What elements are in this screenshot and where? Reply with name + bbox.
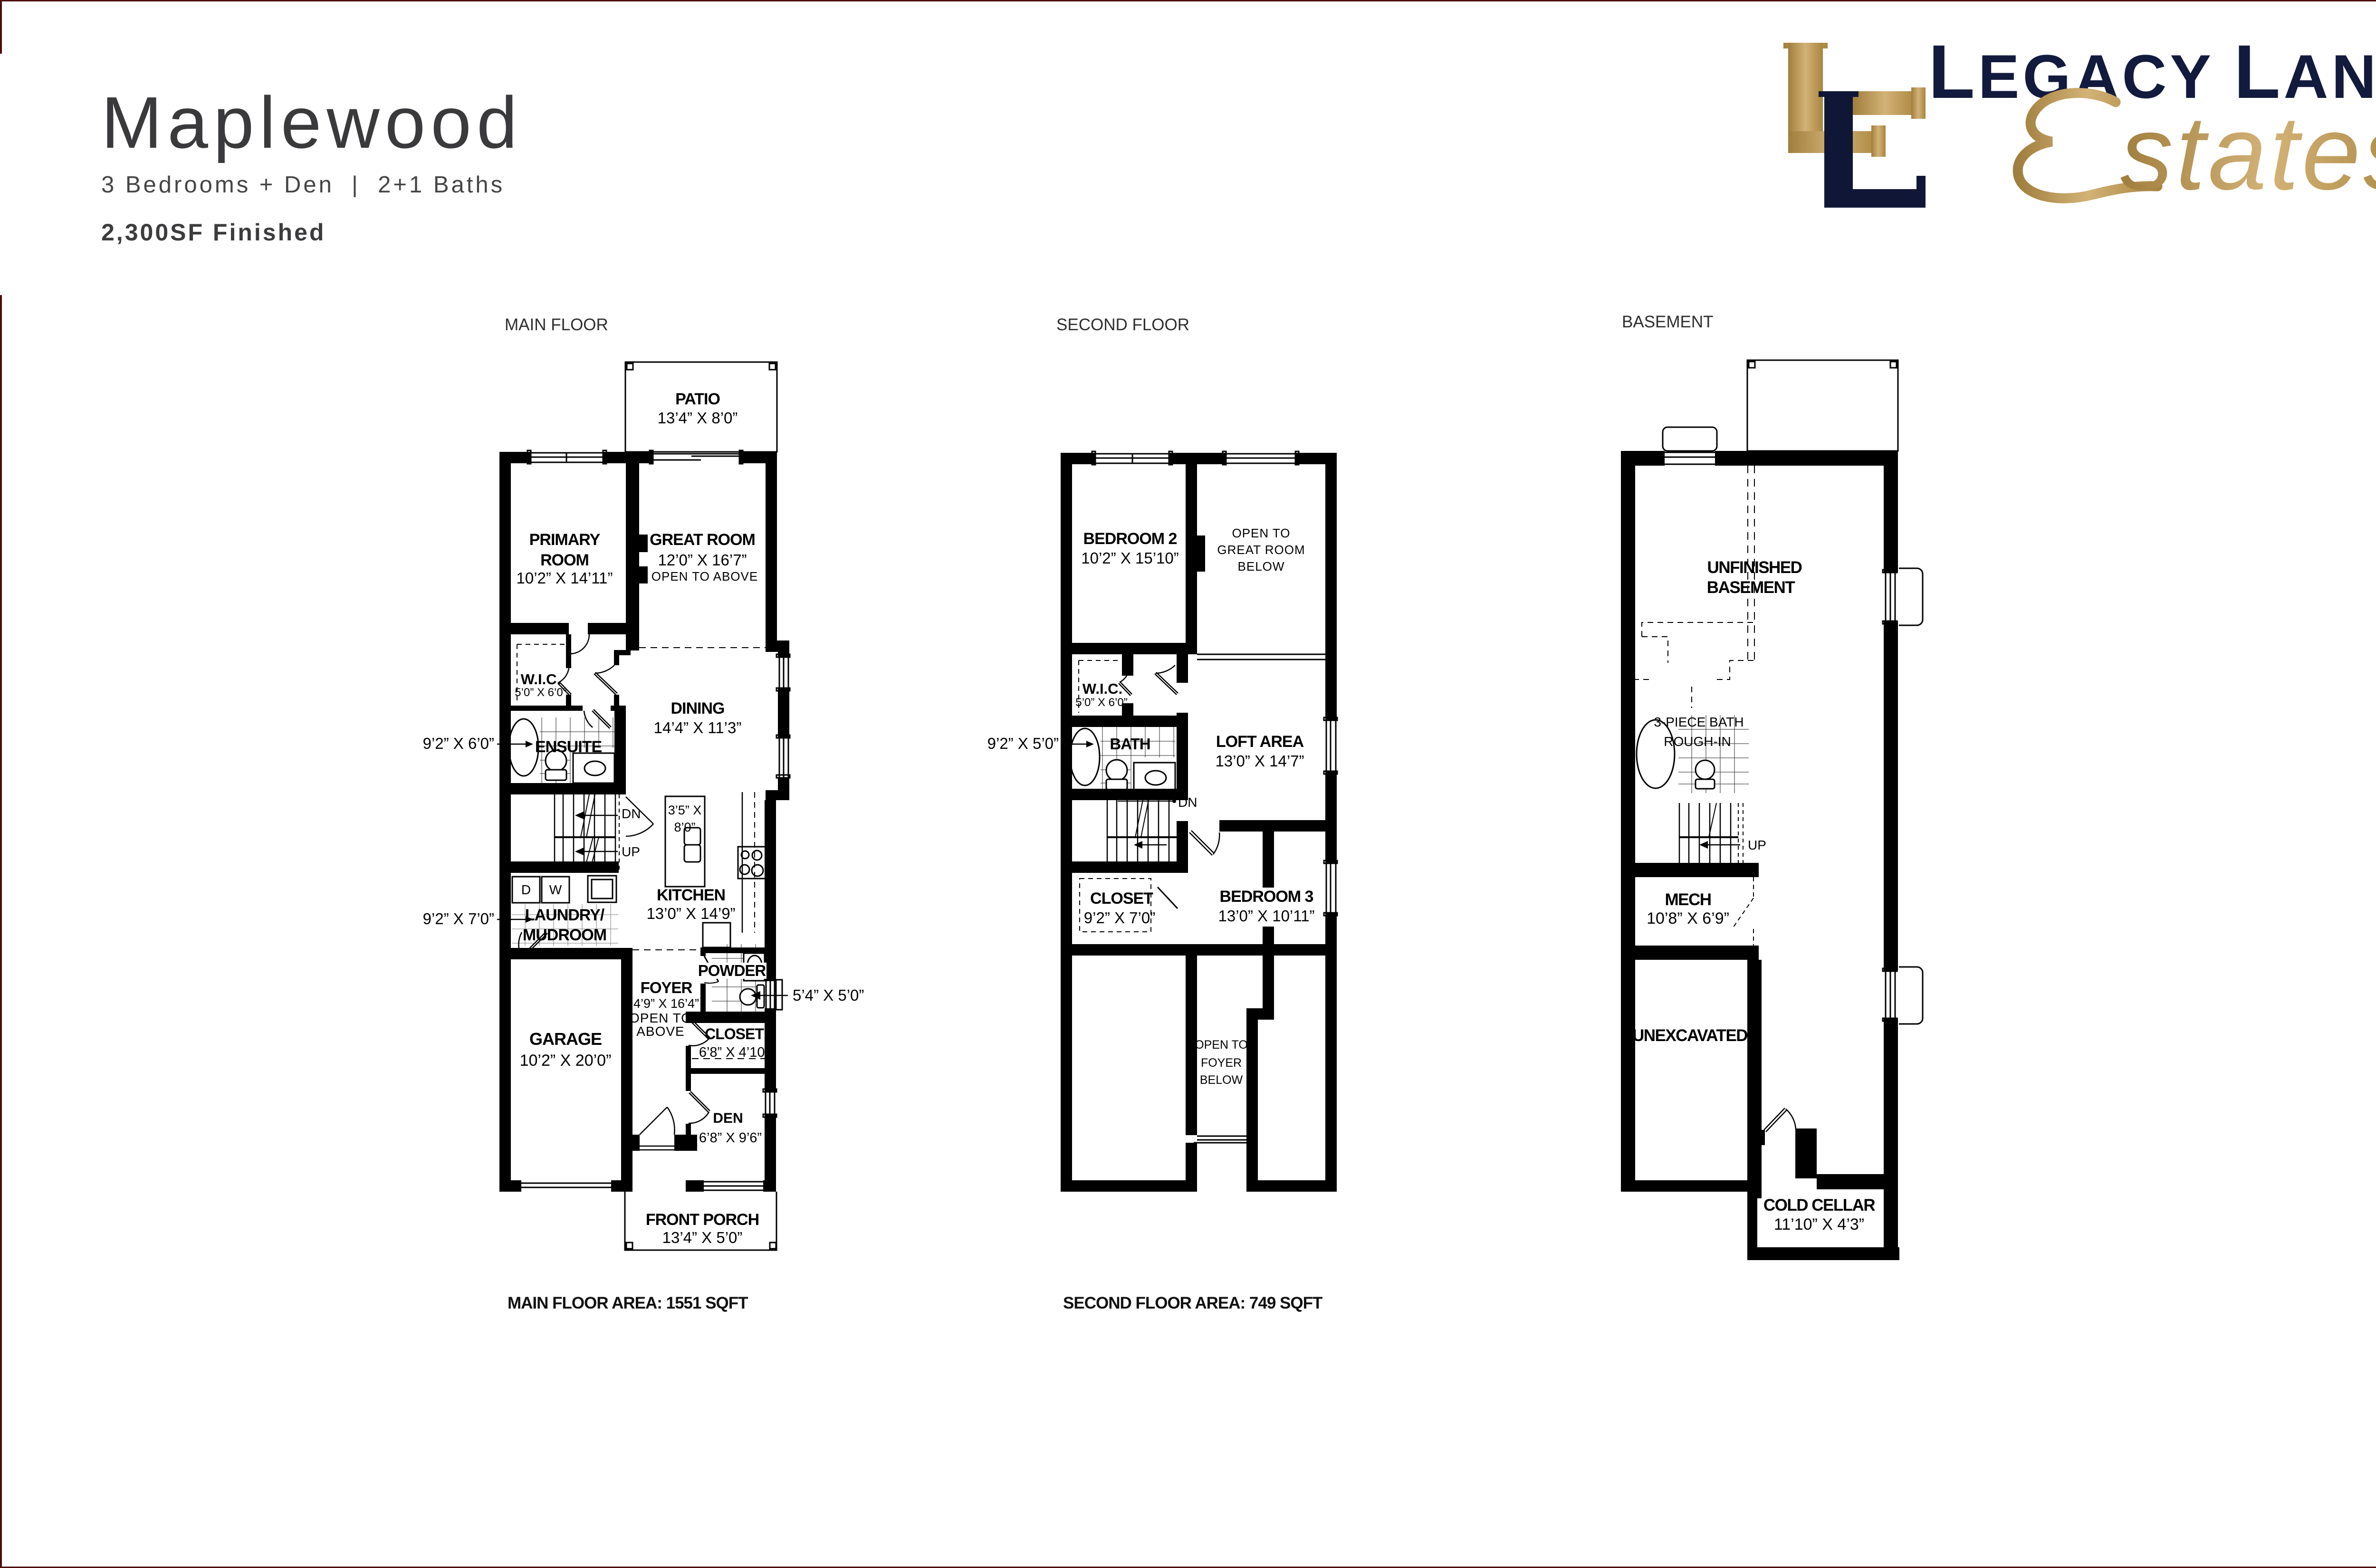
svg-text:GREAT ROOM: GREAT ROOM — [650, 531, 755, 549]
svg-text:UNEXCAVATED: UNEXCAVATED — [1632, 1026, 1747, 1045]
svg-text:13’4” X 5’0”: 13’4” X 5’0” — [662, 1229, 743, 1246]
svg-text:PATIO: PATIO — [675, 390, 720, 408]
svg-text:GREAT ROOM: GREAT ROOM — [1217, 543, 1305, 557]
svg-text:10’2” X 14’11”: 10’2” X 14’11” — [516, 569, 613, 587]
svg-text:OPEN TO: OPEN TO — [1232, 526, 1290, 540]
svg-text:BELOW: BELOW — [1238, 559, 1285, 574]
svg-text:UP: UP — [1748, 838, 1766, 852]
svg-text:5’4” X 5’0”: 5’4” X 5’0” — [793, 986, 864, 1004]
svg-text:GARAGE: GARAGE — [529, 1029, 602, 1049]
svg-text:CLOSET: CLOSET — [705, 1025, 764, 1042]
svg-text:LOFT AREA: LOFT AREA — [1216, 733, 1304, 751]
svg-text:W.I.C.: W.I.C. — [521, 671, 561, 688]
svg-text:10’2” X 15’10”: 10’2” X 15’10” — [1081, 549, 1178, 567]
svg-text:OPEN TO: OPEN TO — [629, 1011, 692, 1025]
svg-text:FOYER: FOYER — [641, 979, 693, 996]
svg-text:12’0” X 16’7”: 12’0” X 16’7” — [658, 551, 747, 569]
svg-text:5’0” X 6’0”: 5’0” X 6’0” — [515, 686, 566, 699]
svg-text:14’4” X 11’3”: 14’4” X 11’3” — [654, 719, 742, 736]
svg-text:6’8” X 4’10”: 6’8” X 4’10” — [699, 1045, 769, 1060]
svg-text:13’0” X 14’7”: 13’0” X 14’7” — [1215, 752, 1304, 770]
svg-text:MECH: MECH — [1665, 890, 1711, 909]
svg-text:OPEN TO: OPEN TO — [1195, 1038, 1248, 1052]
svg-text:ROOM: ROOM — [540, 551, 589, 569]
svg-text:UP: UP — [622, 844, 640, 859]
svg-text:LAUNDRY/: LAUNDRY/ — [525, 906, 605, 924]
svg-text:D: D — [521, 882, 531, 897]
svg-text:BELOW: BELOW — [1200, 1073, 1243, 1087]
svg-text:W.I.C.: W.I.C. — [1083, 680, 1122, 697]
svg-text:9’2” X 6’0”: 9’2” X 6’0” — [423, 735, 494, 752]
svg-text:8’0”: 8’0” — [674, 820, 695, 834]
svg-text:13’0” X 10’11”: 13’0” X 10’11” — [1218, 907, 1314, 925]
svg-text:FOYER: FOYER — [1201, 1056, 1242, 1070]
svg-text:11’10” X 4’3”: 11’10” X 4’3” — [1774, 1215, 1864, 1233]
svg-text:DN: DN — [1178, 795, 1197, 810]
svg-text:W: W — [549, 882, 562, 897]
svg-text:BEDROOM 3: BEDROOM 3 — [1220, 888, 1313, 906]
svg-text:4’9” X 16’4”: 4’9” X 16’4” — [633, 996, 699, 1011]
svg-text:6’8” X 9’6”: 6’8” X 9’6” — [699, 1130, 762, 1146]
svg-text:CLOSET: CLOSET — [1090, 889, 1153, 908]
svg-text:9’2” X 7’0”: 9’2” X 7’0” — [1084, 909, 1155, 927]
svg-text:9’2” X 7’0”: 9’2” X 7’0” — [423, 910, 494, 927]
svg-text:10’8” X 6’9”: 10’8” X 6’9” — [1647, 909, 1729, 927]
svg-text:DEN: DEN — [713, 1110, 743, 1126]
svg-text:OPEN TO ABOVE: OPEN TO ABOVE — [651, 569, 758, 583]
svg-text:DINING: DINING — [671, 699, 725, 717]
svg-text:9’2” X 5’0”: 9’2” X 5’0” — [987, 735, 1059, 752]
svg-text:ENSUITE: ENSUITE — [535, 738, 602, 756]
svg-text:BATH: BATH — [1110, 735, 1150, 753]
svg-text:13’4” X 8’0”: 13’4” X 8’0” — [658, 409, 738, 427]
svg-text:MUDROOM: MUDROOM — [523, 926, 606, 944]
svg-text:5’0” X 6’0”: 5’0” X 6’0” — [1075, 696, 1127, 709]
svg-text:10’2” X 20’0”: 10’2” X 20’0” — [520, 1052, 612, 1070]
svg-text:ABOVE: ABOVE — [636, 1024, 684, 1039]
svg-text:PRIMARY: PRIMARY — [529, 531, 601, 549]
svg-text:COLD CELLAR: COLD CELLAR — [1763, 1196, 1876, 1214]
svg-text:BEDROOM 2: BEDROOM 2 — [1083, 530, 1177, 548]
svg-text:13’0” X 14’9”: 13’0” X 14’9” — [646, 905, 735, 922]
svg-text:POWDER: POWDER — [698, 962, 766, 979]
svg-text:3’5” X: 3’5” X — [668, 803, 702, 817]
svg-text:BASEMENT: BASEMENT — [1707, 578, 1795, 597]
svg-text:states: states — [2120, 94, 2376, 212]
svg-text:KITCHEN: KITCHEN — [657, 886, 725, 904]
svg-text:FRONT PORCH: FRONT PORCH — [646, 1211, 759, 1229]
